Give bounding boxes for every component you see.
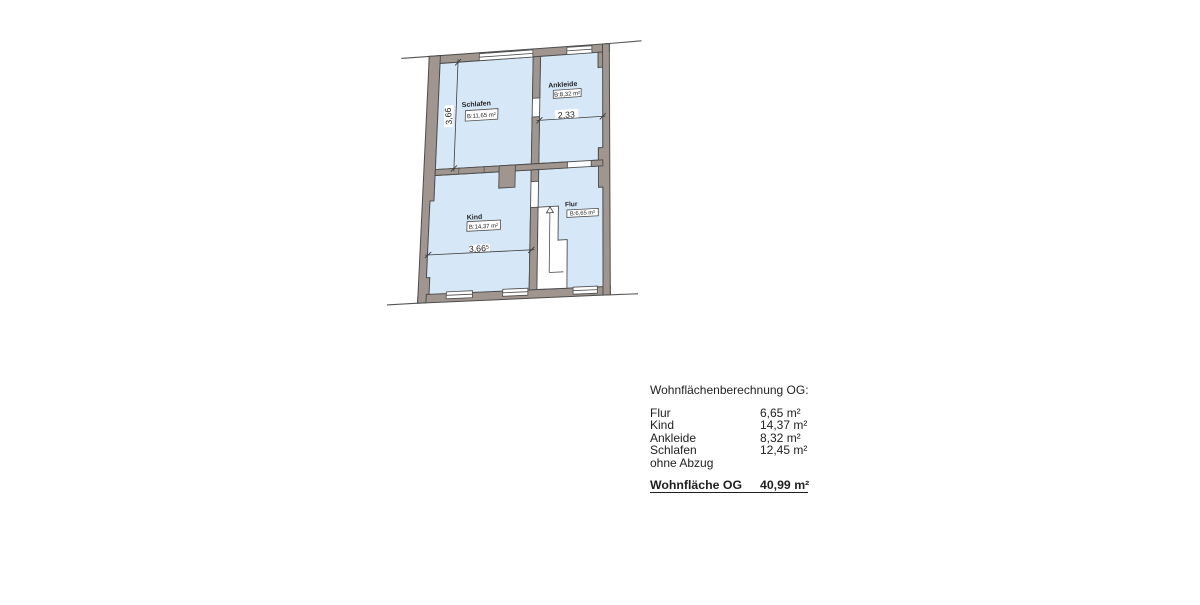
svg-text:2,33: 2,33 [557, 109, 575, 120]
svg-text:3,665: 3,665 [469, 243, 490, 254]
svg-text:3,66: 3,66 [443, 107, 454, 125]
svg-text:Kind: Kind [467, 214, 483, 222]
svg-text:Flur: Flur [565, 201, 578, 209]
